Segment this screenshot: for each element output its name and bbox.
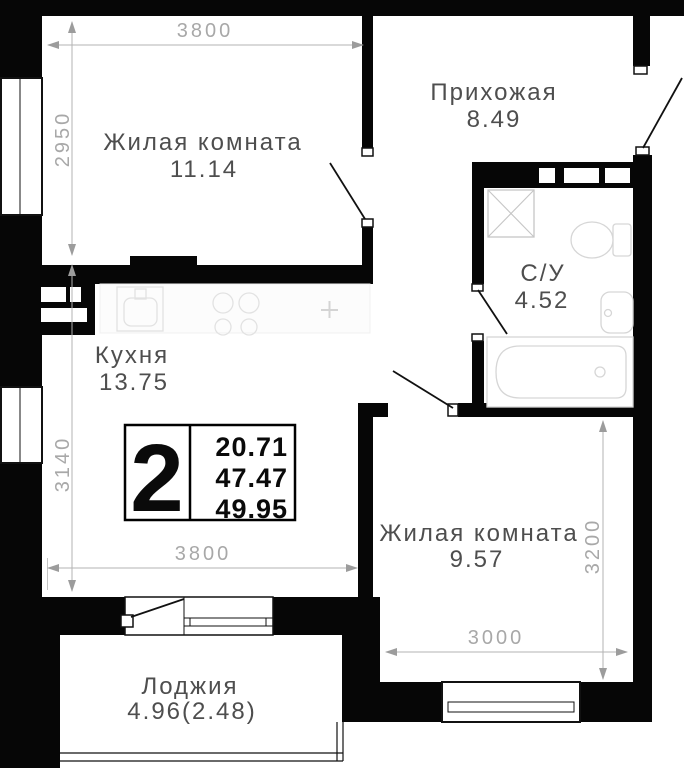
balcony-door-window-icon <box>121 597 273 635</box>
room-label-bathroom: С/У 4.52 <box>515 260 570 314</box>
bathroom-sink-icon <box>601 292 633 333</box>
bathtub-icon <box>487 337 633 407</box>
dimension-bottom-right-width: 3000 <box>386 627 627 652</box>
room-area: 4.52 <box>515 287 570 314</box>
room-name: Кухня <box>95 342 169 369</box>
washing-machine-icon <box>488 190 534 237</box>
room-name: С/У <box>520 260 565 287</box>
room-label-loggia: Лоджия 4.96(2.48) <box>127 673 256 725</box>
dimension-right-height-label: 3200 <box>582 518 604 575</box>
dimension-top-width: 3800 <box>48 20 363 45</box>
dimension-left-lower-label: 3140 <box>52 436 74 493</box>
room-area: 11.14 <box>170 156 238 183</box>
room-area: 9.57 <box>450 546 505 573</box>
badge-area-2: 47.47 <box>215 463 288 493</box>
room-label-living-1: Жилая комната 11.14 <box>103 129 302 183</box>
room-name: Жилая комната <box>379 520 578 547</box>
living1-door-icon <box>330 148 373 227</box>
dimension-bottom-width: 3800 <box>48 543 358 590</box>
room-label-hallway: Прихожая 8.49 <box>430 79 557 133</box>
room-area: 13.75 <box>99 369 169 396</box>
badge-area-1: 20.71 <box>215 432 288 462</box>
room-name: Жилая комната <box>103 129 302 156</box>
dimension-left-upper-label: 2950 <box>52 111 74 168</box>
bathroom-door-icon <box>472 284 507 341</box>
window-left-lower-icon <box>1 387 42 463</box>
floor-plan-svg: 3800 2950 3140 3800 3200 3000 Жилая комн… <box>0 0 684 768</box>
room-name: Лоджия <box>141 673 238 700</box>
window-left-upper-icon <box>1 78 42 215</box>
room-name: Прихожая <box>430 79 557 106</box>
room-area: 8.49 <box>467 106 522 133</box>
dimension-bottom-right-width-label: 3000 <box>468 627 525 649</box>
entry-door-icon <box>634 66 682 155</box>
room-label-kitchen: Кухня 13.75 <box>95 342 169 396</box>
toilet-icon <box>571 222 631 258</box>
living2-door-icon <box>393 371 458 416</box>
info-badge: 2 20.71 47.47 49.95 <box>125 425 295 532</box>
dimension-left-upper: 2950 <box>52 22 74 255</box>
window-bottom-icon <box>442 682 580 722</box>
dimension-top-width-label: 3800 <box>177 20 234 42</box>
dimension-right-height: 3200 <box>582 421 604 679</box>
loggia-glazing-icon <box>60 722 343 761</box>
floor-plan: 3800 2950 3140 3800 3200 3000 Жилая комн… <box>0 0 684 768</box>
dimension-bottom-width-label: 3800 <box>175 543 232 565</box>
room-area: 4.96(2.48) <box>127 698 256 725</box>
room-label-living-2: Жилая комната 9.57 <box>379 520 578 573</box>
badge-area-3: 49.95 <box>215 494 288 524</box>
room-count: 2 <box>130 425 183 532</box>
